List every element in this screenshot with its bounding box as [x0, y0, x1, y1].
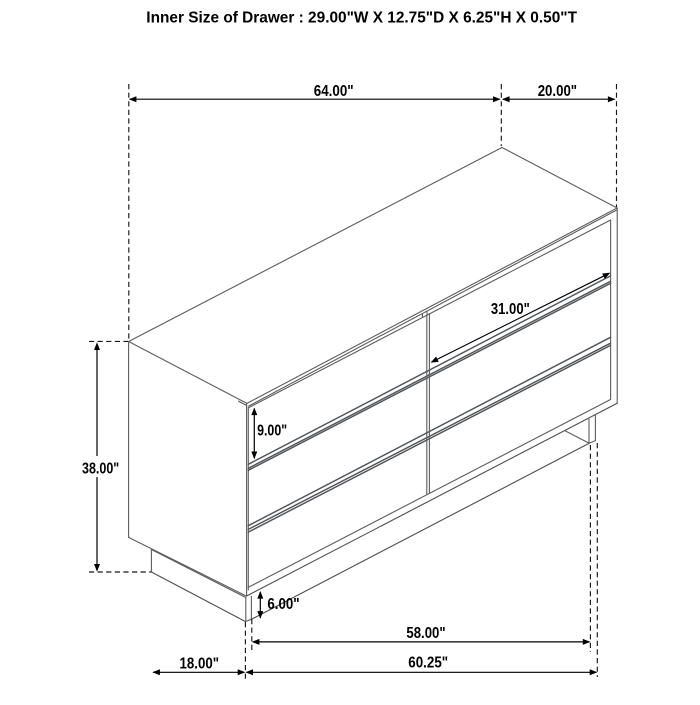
svg-text:31.00": 31.00" — [491, 301, 530, 318]
svg-text:6.00": 6.00" — [267, 596, 299, 613]
svg-text:Inner Size of Drawer : 29.00"W: Inner Size of Drawer : 29.00"W X 12.75"D… — [146, 10, 577, 27]
svg-text:20.00": 20.00" — [538, 83, 577, 100]
svg-text:18.00": 18.00" — [180, 656, 220, 673]
svg-text:9.00": 9.00" — [257, 422, 287, 439]
svg-text:38.00": 38.00" — [82, 460, 119, 477]
svg-text:64.00": 64.00" — [314, 83, 354, 100]
svg-text:58.00": 58.00" — [406, 625, 445, 642]
svg-text:60.25": 60.25" — [408, 655, 448, 672]
